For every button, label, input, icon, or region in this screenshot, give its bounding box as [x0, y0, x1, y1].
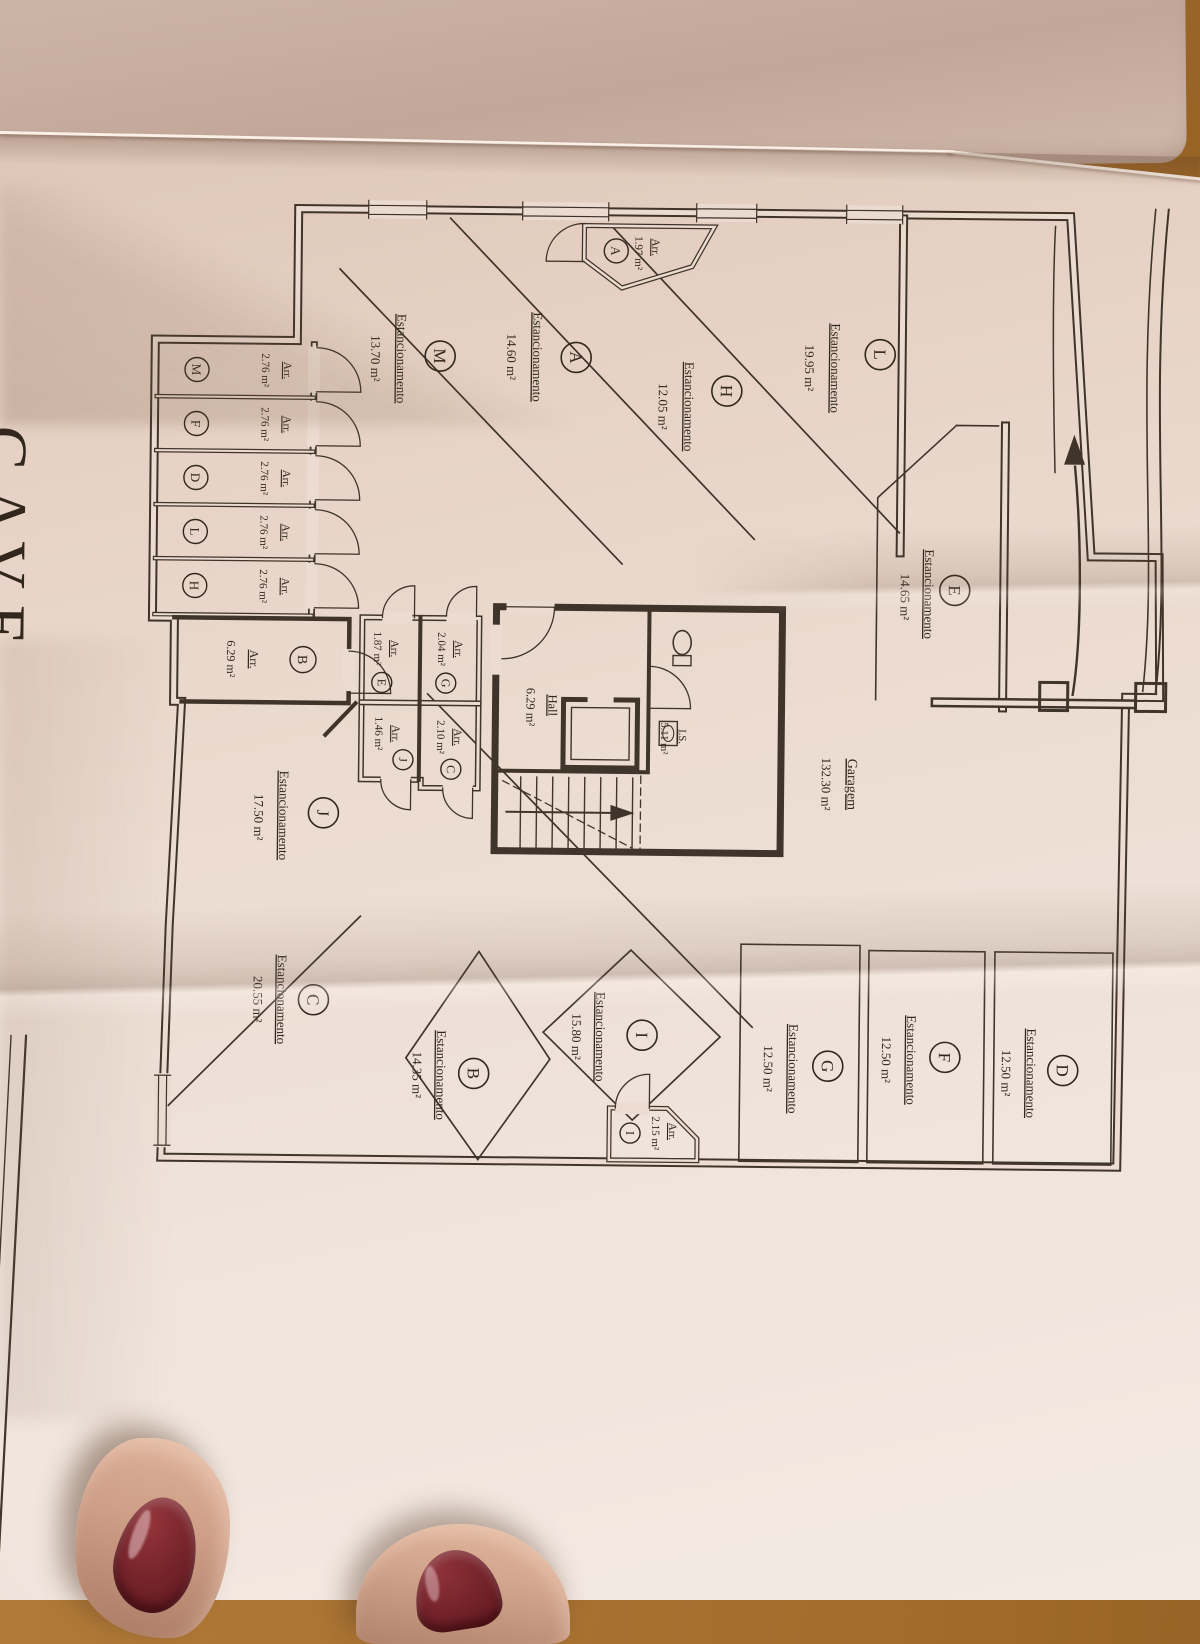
photo-vignette: [0, 0, 1200, 1600]
photo-of-floor-plan: { "document": { "floor_title": "CAVE", "…: [0, 0, 1200, 1600]
